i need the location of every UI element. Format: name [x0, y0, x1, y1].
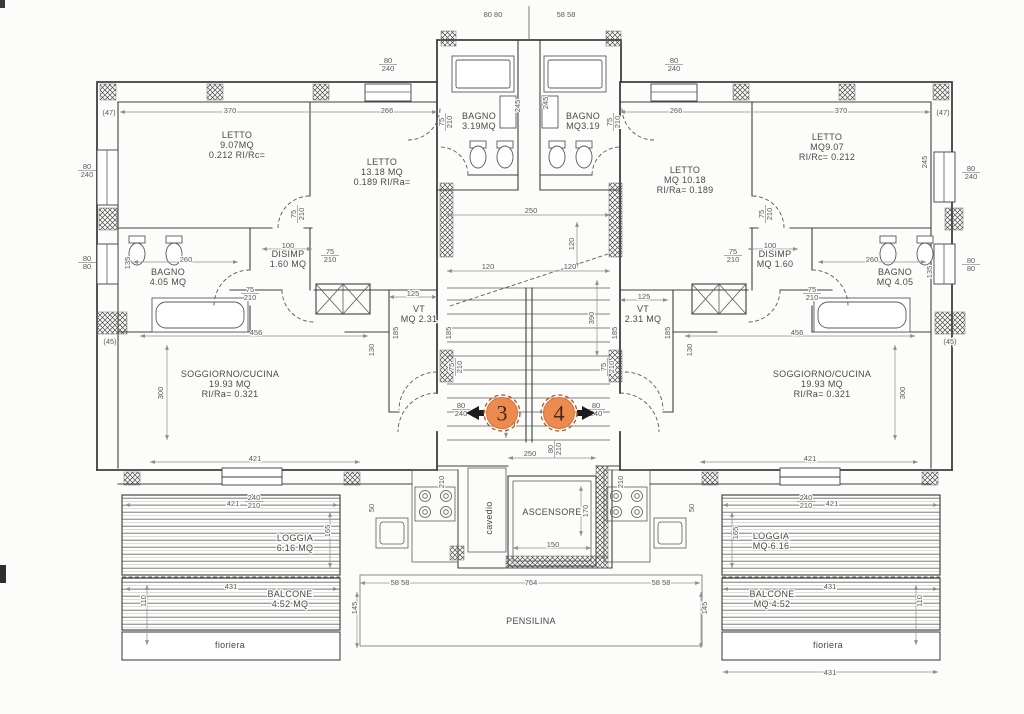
svg-text:764: 764 — [525, 578, 538, 587]
loggia-balcone-left — [122, 495, 340, 660]
dim-145: 145 — [350, 602, 359, 615]
dim-80-240: 80240 — [379, 56, 397, 73]
dim-185: 185 — [444, 327, 453, 340]
label-vt-dx: VT2.31 MQ — [625, 304, 662, 324]
svg-text:421: 421 — [804, 454, 817, 463]
dim-370: 370 — [835, 106, 848, 115]
svg-text:456: 456 — [791, 328, 804, 337]
svg-text:80240: 80240 — [382, 56, 395, 73]
svg-text:165: 165 — [731, 527, 740, 540]
dim-135: 135 — [123, 257, 132, 270]
svg-text:8080: 8080 — [967, 256, 975, 273]
dim-300: 300 — [156, 387, 165, 400]
svg-text:PENSILINA: PENSILINA — [506, 616, 556, 626]
label-letto-1-sx: LETTO9.07MQ0.212 RI/Rc= — [209, 130, 265, 160]
dim-75-210: 75210 — [321, 247, 339, 264]
svg-text:SOGGIORNO/CUCINA19.93 MQRI/Ra=: SOGGIORNO/CUCINA19.93 MQRI/Ra= 0.321 — [773, 369, 871, 399]
dim-110: 110 — [139, 595, 148, 607]
svg-text:120: 120 — [564, 262, 577, 271]
marker-4-number: 4 — [554, 401, 565, 426]
svg-text:80240: 80240 — [81, 162, 94, 179]
svg-text:145: 145 — [700, 602, 709, 615]
label-soggiorno-sx: SOGGIORNO/CUCINA19.93 MQRI/Ra= 0.321 — [181, 369, 279, 399]
label-letto-1-dx: LETTOMQ9.07RI/Rc= 0.212 — [799, 132, 855, 162]
svg-text:266: 266 — [381, 106, 394, 115]
svg-text:370: 370 — [224, 106, 237, 115]
svg-text:BAGNOMQ3.19: BAGNOMQ3.19 — [566, 111, 600, 131]
dim-431: 431 — [824, 582, 837, 591]
dim-80-240: 80240 — [962, 164, 980, 181]
dim-75-210: 75210 — [289, 205, 306, 223]
svg-text:75210: 75210 — [727, 247, 740, 264]
dim-75-210: 75210 — [724, 247, 742, 264]
svg-text:LOGGIA6.16 MQ: LOGGIA6.16 MQ — [277, 533, 314, 553]
svg-text:LETTOMQ 10.18RI/Ra= 0.189: LETTOMQ 10.18RI/Ra= 0.189 — [657, 165, 714, 195]
dim-150: 150 — [547, 540, 560, 549]
label-bagno-top-sx: BAGNO3.19MQ — [462, 111, 496, 131]
label-ascensore: ASCENSORE — [522, 507, 581, 517]
dim-431: 431 — [824, 668, 837, 677]
dim-120: 120 — [482, 262, 495, 271]
svg-text:185: 185 — [391, 327, 400, 340]
svg-text:75210: 75210 — [806, 285, 819, 302]
dim-80-210: 80210 — [546, 440, 563, 458]
svg-text:50: 50 — [687, 504, 696, 512]
svg-text:185: 185 — [444, 327, 453, 340]
svg-text:(47): (47) — [102, 108, 116, 117]
dim-456: 456 — [250, 328, 263, 337]
svg-text:75210: 75210 — [324, 247, 337, 264]
svg-text:LETTO9.07MQ0.212 RI/Rc=: LETTO9.07MQ0.212 RI/Rc= — [209, 130, 265, 160]
label-balcone-sx: BALCONE4.52 MQ — [267, 589, 312, 609]
dim-(45): (45) — [943, 337, 957, 346]
svg-text:125: 125 — [407, 289, 420, 298]
dim-456: 456 — [791, 328, 804, 337]
svg-text:260: 260 — [180, 255, 193, 264]
svg-text:110: 110 — [139, 595, 148, 607]
svg-text:75210: 75210 — [289, 208, 306, 221]
label-cavedio: cavedio — [484, 501, 494, 534]
dim-250: 250 — [525, 206, 538, 215]
dim-266: 266 — [670, 106, 683, 115]
label-letto-2-dx: LETTOMQ 10.18RI/Ra= 0.189 — [657, 165, 714, 195]
label-fioriera-sx: fioriera — [215, 640, 245, 650]
svg-text:LETTO13.18 MQ0.189 RI/Ra=: LETTO13.18 MQ0.189 RI/Ra= — [354, 157, 411, 187]
svg-text:BALCONEMQ 4.52: BALCONEMQ 4.52 — [749, 589, 794, 609]
svg-text:75210: 75210 — [757, 208, 774, 221]
label-loggia-dx: LOGGIAMQ 6.16 — [753, 531, 790, 551]
floor-plan-drawing: LETTO9.07MQ0.212 RI/Rc=LETTO13.18 MQ0.18… — [0, 0, 1024, 714]
label-pensilina: PENSILINA — [506, 616, 556, 626]
svg-text:LOGGIAMQ 6.16: LOGGIAMQ 6.16 — [753, 531, 790, 551]
svg-text:240210: 240210 — [800, 493, 813, 510]
dim-120: 120 — [564, 262, 577, 271]
svg-text:75210: 75210 — [605, 116, 622, 129]
svg-text:120: 120 — [482, 262, 495, 271]
svg-text:250: 250 — [524, 449, 537, 458]
dim-50: 50 — [367, 504, 376, 512]
svg-text:110: 110 — [915, 595, 924, 607]
svg-text:185: 185 — [663, 327, 672, 340]
dim-165: 165 — [323, 525, 332, 538]
dim-80-240: 80240 — [452, 401, 470, 418]
svg-text:DISIMPMQ 1.60: DISIMPMQ 1.60 — [757, 249, 794, 269]
label-letto-2-sx: LETTO13.18 MQ0.189 RI/Ra= — [354, 157, 411, 187]
dim-185: 185 — [663, 327, 672, 340]
svg-text:fioriera: fioriera — [813, 640, 843, 650]
svg-text:130: 130 — [367, 344, 376, 357]
svg-text:100: 100 — [282, 241, 295, 250]
label-soggiorno-dx: SOGGIORNO/CUCINA19.93 MQRI/Ra= 0.321 — [773, 369, 871, 399]
svg-text:431: 431 — [824, 582, 837, 591]
wall-pillars — [97, 31, 965, 485]
label-bagno-dx: BAGNOMQ 4.05 — [877, 267, 914, 287]
dim-80-80: 8080 — [78, 254, 96, 271]
dim-(45): (45) — [103, 337, 117, 346]
dim-170: 170 — [581, 505, 590, 518]
svg-text:(45): (45) — [103, 337, 117, 346]
duct-shafts — [316, 284, 746, 314]
label-bagno-sx: BAGNO4.05 MQ — [150, 267, 187, 287]
svg-text:BAGNO3.19MQ: BAGNO3.19MQ — [462, 111, 496, 131]
svg-text:120: 120 — [567, 238, 576, 251]
dim-58 58: 58 58 — [557, 10, 576, 19]
dim-125: 125 — [638, 292, 651, 301]
dim-145: 145 — [700, 602, 709, 615]
dim-370: 370 — [224, 106, 237, 115]
svg-text:135: 135 — [925, 266, 934, 279]
dim-58 58: 58 58 — [652, 578, 671, 587]
label-bagno-top-dx: BAGNOMQ3.19 — [566, 111, 600, 131]
svg-text:250: 250 — [525, 206, 538, 215]
svg-text:421: 421 — [826, 499, 839, 508]
svg-text:80210: 80210 — [546, 443, 563, 456]
svg-text:245: 245 — [541, 97, 550, 110]
dim-245: 245 — [541, 97, 550, 110]
svg-text:170: 170 — [581, 505, 590, 518]
dim-(47): (47) — [102, 108, 116, 117]
dim-80-240: 80240 — [665, 56, 683, 73]
scan-artifacts — [0, 0, 6, 583]
dim-75-210: 75210 — [241, 285, 259, 302]
svg-text:421: 421 — [227, 499, 240, 508]
svg-text:266: 266 — [670, 106, 683, 115]
dim-80-240: 80240 — [78, 162, 96, 179]
svg-text:cavedio: cavedio — [484, 501, 494, 534]
svg-text:(45): (45) — [943, 337, 957, 346]
elevator-block — [437, 466, 620, 568]
svg-text:245: 245 — [920, 156, 929, 169]
svg-text:58 58: 58 58 — [557, 10, 576, 19]
dim-80-80: 8080 — [962, 256, 980, 273]
label-disimp-dx: DISIMPMQ 1.60 — [757, 249, 794, 269]
dim-75-210: 75210 — [437, 113, 454, 131]
svg-text:145: 145 — [350, 602, 359, 615]
svg-text:456: 456 — [250, 328, 263, 337]
dim-185: 185 — [391, 327, 400, 340]
label-balcone-dx: BALCONEMQ 4.52 — [749, 589, 794, 609]
svg-text:260: 260 — [866, 255, 879, 264]
dim-260: 260 — [866, 255, 879, 264]
dim-120: 120 — [567, 238, 576, 251]
svg-text:300: 300 — [156, 387, 165, 400]
svg-text:240210: 240210 — [248, 493, 261, 510]
dim-58 58: 58 58 — [391, 578, 410, 587]
svg-text:50: 50 — [367, 504, 376, 512]
dim-185: 185 — [610, 327, 619, 340]
dim-50: 50 — [687, 504, 696, 512]
svg-text:431: 431 — [824, 668, 837, 677]
svg-text:185: 185 — [610, 327, 619, 340]
svg-text:370: 370 — [835, 106, 848, 115]
svg-text:8080: 8080 — [83, 254, 91, 271]
dim-135: 135 — [925, 266, 934, 279]
dim-75-210: 75210 — [757, 205, 774, 223]
loggia-balcone-right — [722, 495, 940, 660]
svg-text:SOGGIORNO/CUCINA19.93 MQRI/Ra=: SOGGIORNO/CUCINA19.93 MQRI/Ra= 0.321 — [181, 369, 279, 399]
dim-421: 421 — [227, 499, 240, 508]
dim-266: 266 — [381, 106, 394, 115]
marker-3-left-arrow-icon — [466, 406, 484, 420]
svg-text:LETTOMQ9.07RI/Rc= 0.212: LETTOMQ9.07RI/Rc= 0.212 — [799, 132, 855, 162]
svg-text:245: 245 — [513, 100, 522, 113]
dim-125: 125 — [407, 289, 420, 298]
label-fioriera-dx: fioriera — [813, 640, 843, 650]
svg-text:75210: 75210 — [437, 116, 454, 129]
svg-text:100: 100 — [764, 241, 777, 250]
svg-text:BALCONE4.52 MQ: BALCONE4.52 MQ — [267, 589, 312, 609]
elevator-shaft — [508, 476, 596, 566]
dim-421: 421 — [826, 499, 839, 508]
dim-100: 100 — [764, 241, 777, 250]
svg-text:431: 431 — [225, 582, 238, 591]
door-arcs — [214, 108, 848, 432]
dim-(47): (47) — [936, 108, 950, 117]
svg-text:165: 165 — [323, 525, 332, 538]
dim-130: 130 — [685, 344, 694, 357]
svg-text:80 80: 80 80 — [484, 10, 503, 19]
dim-390: 390 — [587, 312, 596, 325]
svg-text:80240: 80240 — [965, 164, 978, 181]
label-disimp-sx: DISIMP1.60 MQ — [270, 249, 307, 269]
dim-421: 421 — [249, 454, 262, 463]
dim-110: 110 — [915, 595, 924, 607]
svg-text:ASCENSORE: ASCENSORE — [522, 507, 581, 517]
dim-421: 421 — [804, 454, 817, 463]
dim-250: 250 — [524, 449, 537, 458]
dim-165: 165 — [731, 527, 740, 540]
svg-text:80240: 80240 — [590, 401, 603, 418]
svg-text:150: 150 — [547, 540, 560, 549]
svg-text:80240: 80240 — [668, 56, 681, 73]
dim-260: 260 — [180, 255, 193, 264]
svg-text:VT2.31 MQ: VT2.31 MQ — [625, 304, 662, 324]
dim-210: 210 — [437, 476, 446, 489]
dim-210: 210 — [616, 476, 625, 489]
svg-text:75210: 75210 — [244, 285, 257, 302]
svg-text:VTMQ 2.31: VTMQ 2.31 — [401, 304, 438, 324]
svg-text:BAGNO4.05 MQ: BAGNO4.05 MQ — [150, 267, 187, 287]
svg-text:58 58: 58 58 — [391, 578, 410, 587]
dim-80 80: 80 80 — [484, 10, 503, 19]
svg-text:421: 421 — [249, 454, 262, 463]
dim-764: 764 — [525, 578, 538, 587]
svg-text:58 58: 58 58 — [652, 578, 671, 587]
svg-text:80240: 80240 — [455, 401, 468, 418]
svg-text:135: 135 — [123, 257, 132, 270]
svg-text:fioriera: fioriera — [215, 640, 245, 650]
svg-text:BAGNOMQ 4.05: BAGNOMQ 4.05 — [877, 267, 914, 287]
marker-3-number: 3 — [497, 401, 508, 426]
svg-text:(47): (47) — [936, 108, 950, 117]
svg-text:130: 130 — [685, 344, 694, 357]
floor-plan-page: LETTO9.07MQ0.212 RI/Rc=LETTO13.18 MQ0.18… — [0, 0, 1024, 714]
svg-text:210: 210 — [616, 476, 625, 489]
svg-text:DISIMP1.60 MQ: DISIMP1.60 MQ — [270, 249, 307, 269]
dim-130: 130 — [367, 344, 376, 357]
svg-text:125: 125 — [638, 292, 651, 301]
svg-text:300: 300 — [898, 387, 907, 400]
dim-100: 100 — [282, 241, 295, 250]
svg-text:210: 210 — [437, 476, 446, 489]
dim-300: 300 — [898, 387, 907, 400]
label-loggia-sx: LOGGIA6.16 MQ — [277, 533, 314, 553]
dim-245: 245 — [513, 100, 522, 113]
label-vt-sx: VTMQ 2.31 — [401, 304, 438, 324]
dim-431: 431 — [225, 582, 238, 591]
dim-245: 245 — [920, 156, 929, 169]
svg-text:390: 390 — [587, 312, 596, 325]
svg-text:75210: 75210 — [599, 361, 616, 374]
